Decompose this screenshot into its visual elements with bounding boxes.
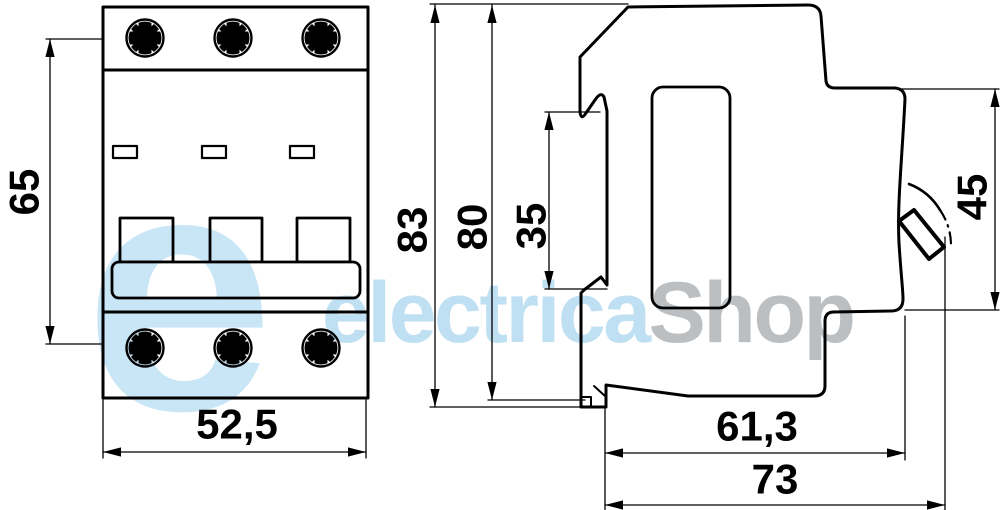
front-view <box>103 7 368 398</box>
side-view <box>580 5 951 407</box>
terminal-screws-top <box>126 19 340 57</box>
side-body-height-dim-label: 80 <box>449 204 496 251</box>
toggle-lever-side <box>899 210 944 259</box>
toggle-tie-bar <box>112 262 360 298</box>
overall-depth-dim-label: 73 <box>752 456 799 503</box>
terminal-screws-bottom <box>126 329 340 367</box>
front-height-dim-label: 65 <box>1 169 48 216</box>
toggle-swing-arc <box>909 184 940 210</box>
body-depth-dim-label: 61,3 <box>716 403 798 450</box>
technical-drawing: 65 52,5 <box>0 0 1000 510</box>
side-body-outline <box>580 5 905 407</box>
front-section-height-dim-label: 45 <box>949 174 996 221</box>
side-overall-height-dim-label: 83 <box>389 207 436 254</box>
din-rail-slot-dim-label: 35 <box>508 203 555 250</box>
dimension-drawing-canvas: 65 52,5 <box>0 0 1000 510</box>
front-width-dim-label: 52,5 <box>196 401 278 448</box>
side-recess-window <box>652 87 730 308</box>
